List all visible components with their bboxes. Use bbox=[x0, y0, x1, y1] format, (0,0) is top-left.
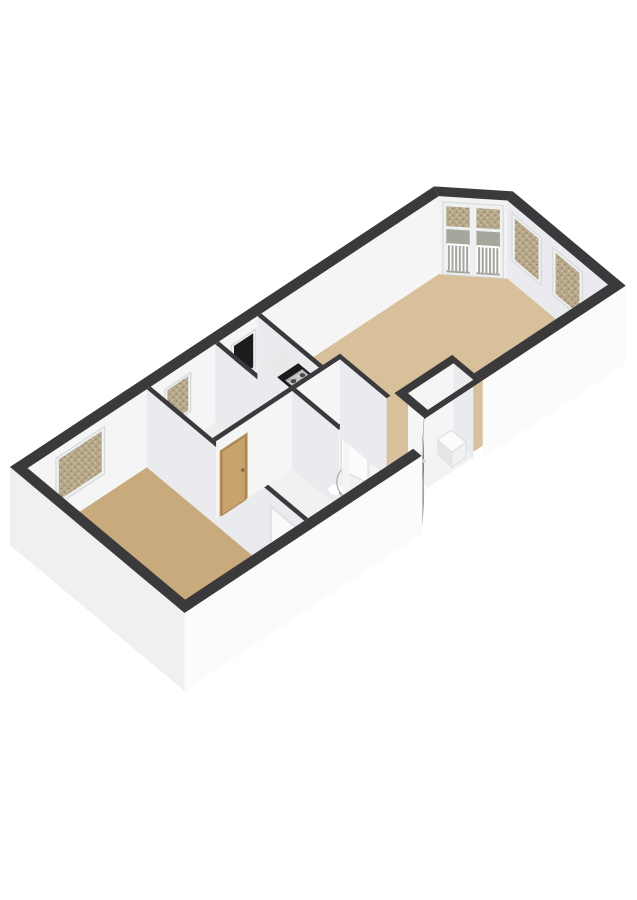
balcony-railing-top-rail bbox=[477, 246, 499, 247]
stove-burner bbox=[291, 379, 297, 383]
floorplan-stage bbox=[0, 0, 637, 900]
balcony-railing-top-rail bbox=[447, 244, 469, 245]
floorplan-3d-render bbox=[0, 0, 637, 900]
stove-burner bbox=[300, 373, 306, 377]
front-door-handle bbox=[422, 459, 426, 463]
balcony-french-door-upper-pane-left bbox=[446, 206, 469, 227]
balcony-french-door-upper-pane-right bbox=[477, 208, 500, 229]
storage-door-handle bbox=[241, 468, 245, 472]
